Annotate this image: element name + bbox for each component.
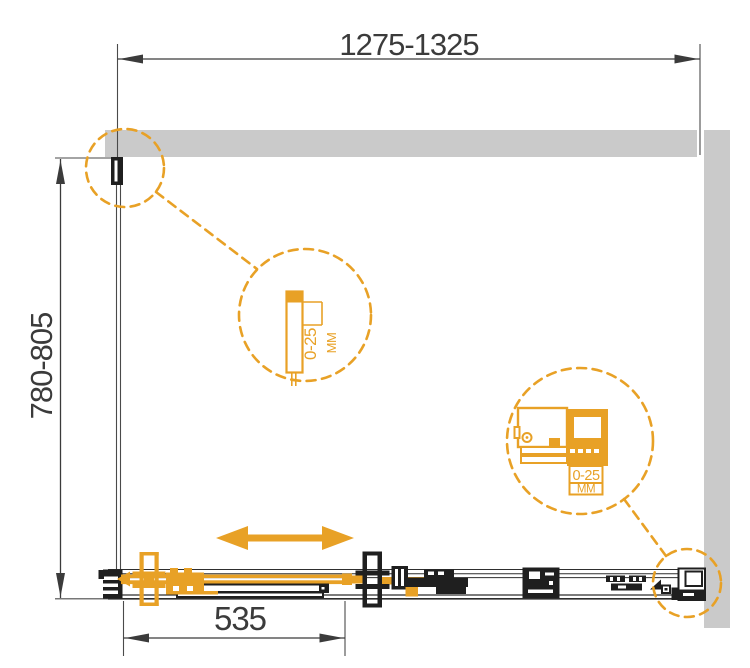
callout-leader-top — [156, 192, 257, 269]
wall-right — [704, 130, 730, 628]
bottom-door-dimension: 535 — [124, 600, 346, 656]
callout-circle-wall-profile-detail — [239, 249, 371, 381]
dim-arrow-down — [56, 573, 65, 597]
left-wall-bracket — [99, 570, 123, 599]
callout-leader-bottom — [624, 499, 666, 556]
right-roller-block — [523, 568, 560, 599]
roller-adjust-unit-label: ММ — [577, 484, 595, 496]
right-corner-bracket — [672, 569, 706, 601]
dim-arrow-up — [56, 160, 65, 184]
door-stopper-cluster — [606, 576, 670, 594]
wall-profile-adjust-range-label: 0-25 — [301, 328, 320, 360]
wall-profile-adjust-unit-label: ММ — [324, 333, 339, 354]
roller-detail-drawing: 0-25 ММ — [515, 408, 609, 496]
dim-arrow-left — [125, 634, 149, 643]
wall-profile-detail-drawing: 0-25 ММ — [287, 292, 340, 387]
wall-top — [105, 130, 697, 157]
technical-drawing-canvas: 1275-1325 780-805 535 — [0, 0, 750, 668]
roller-adjust-range-label: 0-25 — [572, 468, 599, 484]
detail-callouts — [86, 129, 721, 617]
dim-arrow-right — [675, 55, 699, 64]
dim-arrow-right — [320, 634, 344, 643]
fixed-glass-panel-left — [111, 157, 123, 571]
bottom-track-assembly — [99, 552, 706, 608]
middle-roller-cluster — [392, 566, 469, 597]
overall-width-label: 1275-1325 — [339, 27, 478, 62]
left-depth-dimension: 780-805 — [24, 158, 117, 599]
slide-direction-arrow-icon — [216, 526, 354, 550]
door-width-label: 535 — [214, 600, 266, 637]
shower-enclosure-plan-svg: 1275-1325 780-805 535 — [0, 0, 750, 668]
dim-arrow-left — [119, 55, 143, 64]
overall-depth-label: 780-805 — [24, 313, 59, 420]
adjustable-wall-profile — [133, 552, 166, 606]
